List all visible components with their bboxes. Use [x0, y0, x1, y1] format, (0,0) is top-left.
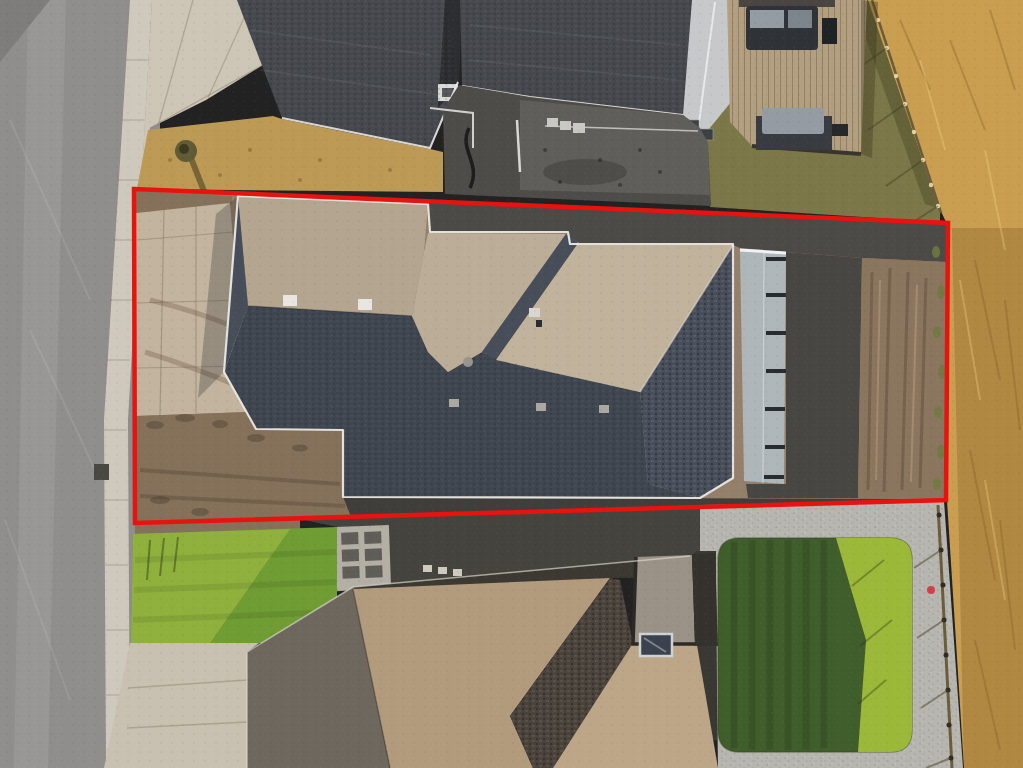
- aerial-photo-canvas: [0, 0, 1023, 768]
- photo-grain-overlay: [0, 0, 1023, 768]
- aerial-photo: [0, 0, 1023, 768]
